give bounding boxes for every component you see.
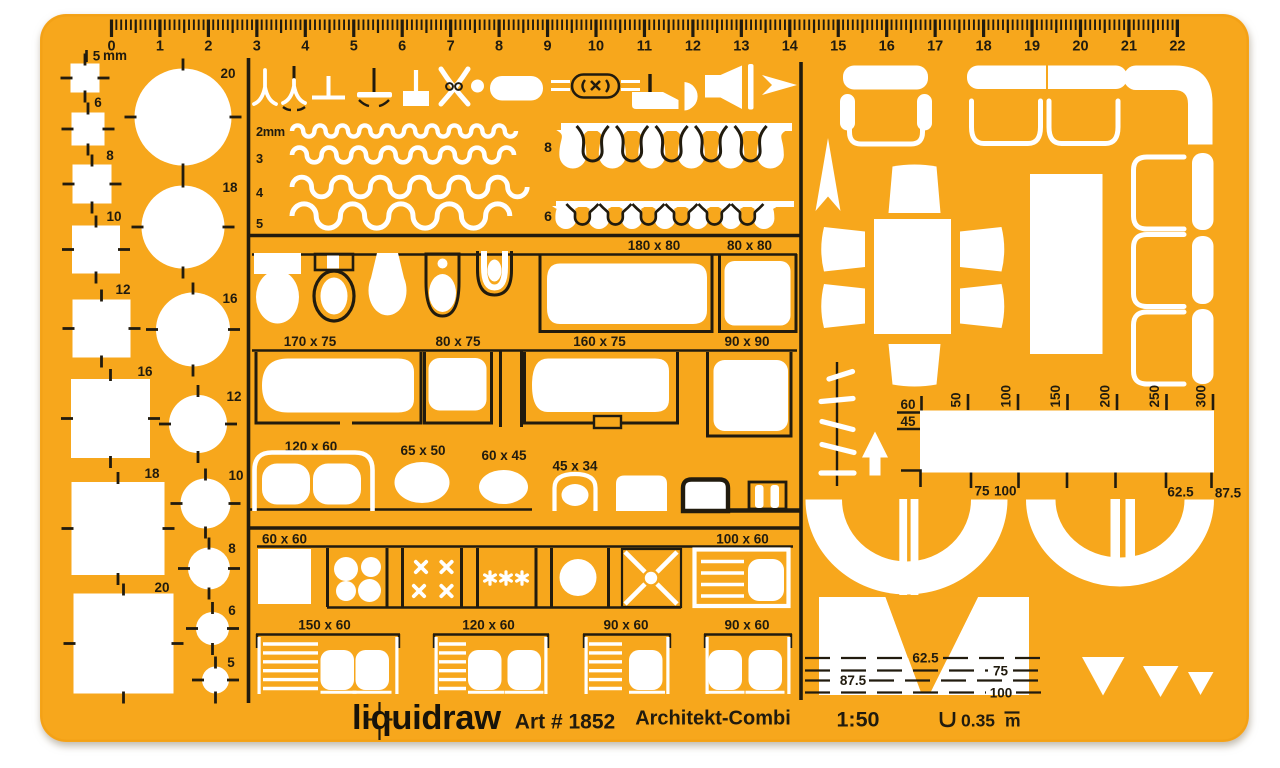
svg-text:150 x 60: 150 x 60 (298, 618, 351, 633)
svg-text:21: 21 (1121, 39, 1137, 55)
svg-text:0.35: 0.35 (961, 711, 995, 731)
svg-text:170 x 75: 170 x 75 (284, 334, 337, 349)
svg-text:15: 15 (830, 39, 846, 55)
svg-text:60 x 60: 60 x 60 (262, 532, 307, 547)
svg-text:62.5: 62.5 (912, 651, 939, 666)
svg-text:14: 14 (782, 39, 798, 55)
svg-text:75: 75 (974, 484, 990, 499)
svg-text:5: 5 (93, 49, 101, 64)
svg-text:100: 100 (990, 686, 1013, 701)
svg-text:16: 16 (222, 291, 238, 306)
svg-text:6: 6 (398, 39, 406, 55)
svg-text:200: 200 (1098, 385, 1113, 408)
svg-text:18: 18 (222, 180, 238, 195)
svg-text:90 x 90: 90 x 90 (724, 334, 769, 349)
svg-text:160 x 75: 160 x 75 (573, 334, 626, 349)
svg-text:10: 10 (228, 468, 243, 483)
svg-text:100 x 60: 100 x 60 (716, 532, 769, 547)
svg-text:45: 45 (900, 414, 916, 429)
svg-text:120 x 60: 120 x 60 (462, 618, 515, 633)
svg-text:87.5: 87.5 (840, 673, 867, 688)
svg-text:2mm: 2mm (256, 124, 285, 139)
svg-text:10: 10 (588, 39, 604, 55)
svg-text:12: 12 (226, 389, 241, 404)
svg-text:9: 9 (544, 39, 552, 55)
svg-text:20: 20 (1072, 39, 1088, 55)
svg-text:17: 17 (927, 39, 943, 55)
svg-text:80 x 80: 80 x 80 (727, 238, 772, 253)
svg-text:60 x 45: 60 x 45 (481, 448, 527, 463)
svg-text:8: 8 (544, 139, 552, 155)
svg-text:12: 12 (115, 282, 130, 297)
svg-text:100: 100 (994, 484, 1017, 499)
svg-text:10: 10 (106, 209, 121, 224)
svg-text:16: 16 (879, 39, 895, 55)
svg-text:62.5: 62.5 (1167, 485, 1194, 500)
svg-text:3: 3 (256, 151, 263, 166)
svg-text:1:50: 1:50 (836, 708, 879, 732)
svg-text:7: 7 (447, 39, 455, 55)
svg-text:6: 6 (94, 95, 102, 110)
svg-text:90 x 60: 90 x 60 (724, 618, 769, 633)
svg-text:8: 8 (495, 39, 503, 55)
svg-text:250: 250 (1147, 385, 1162, 408)
svg-text:60: 60 (900, 397, 915, 412)
svg-text:65 x 50: 65 x 50 (400, 443, 445, 458)
svg-text:4: 4 (256, 185, 264, 200)
svg-text:Art # 1852: Art # 1852 (515, 711, 615, 734)
svg-text:87.5: 87.5 (1215, 486, 1242, 501)
svg-text:5: 5 (227, 655, 235, 670)
svg-text:3: 3 (253, 39, 261, 55)
svg-text:13: 13 (733, 39, 749, 55)
svg-text:6: 6 (544, 208, 552, 224)
svg-text:liquidraw: liquidraw (352, 699, 501, 737)
svg-text:1: 1 (156, 39, 164, 55)
svg-text:50: 50 (949, 392, 964, 407)
svg-text:6: 6 (228, 603, 236, 618)
svg-text:2: 2 (204, 39, 212, 55)
svg-text:20: 20 (220, 66, 235, 81)
svg-text:45 x 34: 45 x 34 (552, 459, 598, 474)
svg-text:8: 8 (228, 541, 236, 556)
svg-text:12: 12 (685, 39, 701, 55)
svg-text:75: 75 (993, 664, 1009, 679)
svg-text:8: 8 (106, 148, 114, 163)
svg-text:18: 18 (976, 39, 992, 55)
svg-text:180 x 80: 180 x 80 (628, 238, 681, 253)
svg-text:11: 11 (637, 39, 652, 55)
svg-text:19: 19 (1024, 39, 1040, 55)
svg-text:150: 150 (1048, 385, 1063, 408)
svg-text:mm: mm (103, 48, 127, 63)
svg-text:18: 18 (144, 466, 160, 481)
svg-text:80 x 75: 80 x 75 (435, 334, 481, 349)
svg-text:22: 22 (1169, 39, 1185, 55)
svg-text:5: 5 (350, 39, 358, 55)
svg-text:300: 300 (1194, 385, 1209, 408)
svg-text:100: 100 (999, 385, 1014, 408)
svg-text:16: 16 (137, 364, 153, 379)
svg-text:20: 20 (154, 580, 169, 595)
svg-text:5: 5 (256, 216, 263, 231)
svg-text:Architekt-Combi: Architekt-Combi (635, 708, 791, 730)
svg-text:90 x 60: 90 x 60 (603, 618, 648, 633)
svg-text:4: 4 (301, 39, 309, 55)
